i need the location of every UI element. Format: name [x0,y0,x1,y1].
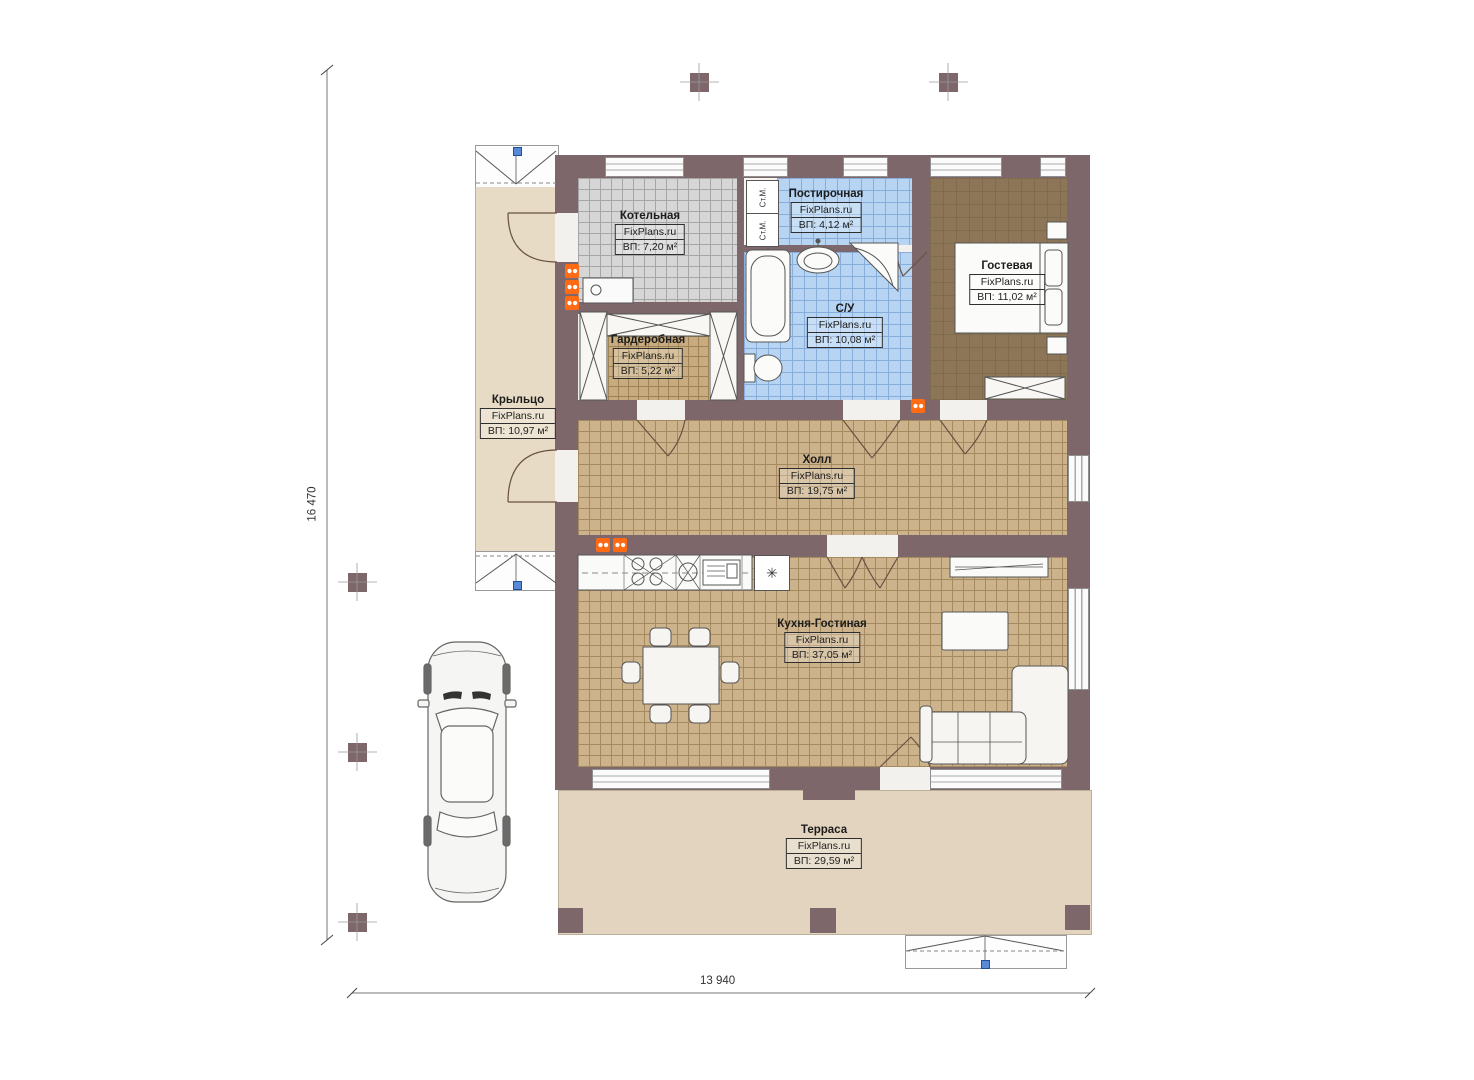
door-opening-porch-boiler [555,213,578,262]
room-area: ВП: 4,12 м² [792,218,860,232]
room-brand: FixPlans.ru [792,203,860,218]
room-area: ВП: 19,75 м² [780,484,854,498]
terrace-wall-stub [790,767,855,788]
room-brand: FixPlans.ru [780,469,854,484]
snowflake-icon: ✳ [766,565,778,582]
post-terrace-1 [558,908,583,933]
room-brand: FixPlans.ru [616,225,684,240]
socket-marker [596,538,610,552]
room-name: Холл [779,454,855,466]
post-left-1 [348,573,367,592]
handle-dot [513,147,522,156]
window-top-5 [1040,157,1066,177]
washing-machine-2: Ст.М. [746,213,779,247]
room-name: Гостевая [969,260,1045,272]
room-label-wardrobe: Гардеробная FixPlans.ru ВП: 5,22 м² [611,334,685,379]
window-right-hall [1068,455,1089,502]
room-name: Гардеробная [611,334,685,346]
room-label-guest: Гостевая FixPlans.ru ВП: 11,02 м² [969,260,1045,305]
room-label-kitchen-living: Кухня-Гостиная FixPlans.ru ВП: 37,05 м² [777,618,866,663]
room-brand: FixPlans.ru [808,318,882,333]
door-opening-porch-hall [555,450,578,502]
room-label-boiler: Котельная FixPlans.ru ВП: 7,20 м² [615,210,685,255]
room-name: С/У [807,303,883,315]
post-terrace-3 [1065,905,1090,930]
floor-plan-canvas: Ст.М. Ст.М. ✳ Котельная FixPlans.ru ВП: … [0,0,1474,1080]
room-brand: FixPlans.ru [614,349,682,364]
room-brand: FixPlans.ru [970,275,1044,290]
post-terrace-2 [810,908,836,933]
room-brand: FixPlans.ru [785,633,859,648]
room-brand: FixPlans.ru [481,409,555,424]
dimension-height: 16 470 [307,486,319,521]
window-top-3 [843,157,888,177]
terrace-wall-stub-2 [803,788,855,800]
post-top-2 [939,73,958,92]
room-label-bathroom: С/У FixPlans.ru ВП: 10,08 м² [807,303,883,348]
room-area: ВП: 37,05 м² [785,648,859,662]
door-opening-guest-hall [940,400,987,420]
room-label-hall: Холл FixPlans.ru ВП: 19,75 м² [779,454,855,499]
door-opening-bath-hall [843,400,900,420]
post-left-3 [348,913,367,932]
post-left-2 [348,743,367,762]
socket-marker [565,264,579,278]
washing-machine-1: Ст.М. [746,180,779,214]
room-area: ВП: 10,97 м² [481,424,555,438]
socket-marker [565,296,579,310]
fridge: ✳ [754,555,790,591]
window-top-1 [605,157,684,177]
window-top-2 [743,157,788,177]
window-bottom-living [592,769,770,789]
car [418,642,516,902]
room-area: ВП: 10,08 м² [808,333,882,347]
post-top-1 [690,73,709,92]
room-area: ВП: 11,02 м² [970,290,1044,304]
room-label-laundry: Постирочная FixPlans.ru ВП: 4,12 м² [789,188,864,233]
room-name: Кухня-Гостиная [777,618,866,630]
room-name: Терраса [786,824,862,836]
room-brand: FixPlans.ru [787,839,861,854]
door-opening-laundry-bath [897,245,912,252]
room-area: ВП: 29,59 м² [787,854,861,868]
door-opening-hall-kitchen [827,535,898,557]
room-name: Постирочная [789,188,864,200]
window-top-4 [930,157,1002,177]
window-bottom-sofa [930,769,1062,789]
door-opening-kitchen-terrace [880,767,930,790]
handle-dot [513,581,522,590]
room-area: ВП: 7,20 м² [616,240,684,254]
washer-label: Ст.М. [758,187,767,207]
porch-area [475,187,559,551]
window-right-living [1068,588,1089,690]
socket-marker [613,538,627,552]
socket-marker [911,399,925,413]
room-name: Котельная [615,210,685,222]
room-area: ВП: 5,22 м² [614,364,682,378]
handle-dot [981,960,990,969]
room-name: Крыльцо [480,394,556,406]
room-label-terrace: Терраса FixPlans.ru ВП: 29,59 м² [786,824,862,869]
socket-marker [565,280,579,294]
room-label-porch: Крыльцо FixPlans.ru ВП: 10,97 м² [480,394,556,439]
dimension-width: 13 940 [700,975,735,987]
washer-label: Ст.М. [758,220,767,240]
door-opening-wardrobe-hall [637,400,685,420]
